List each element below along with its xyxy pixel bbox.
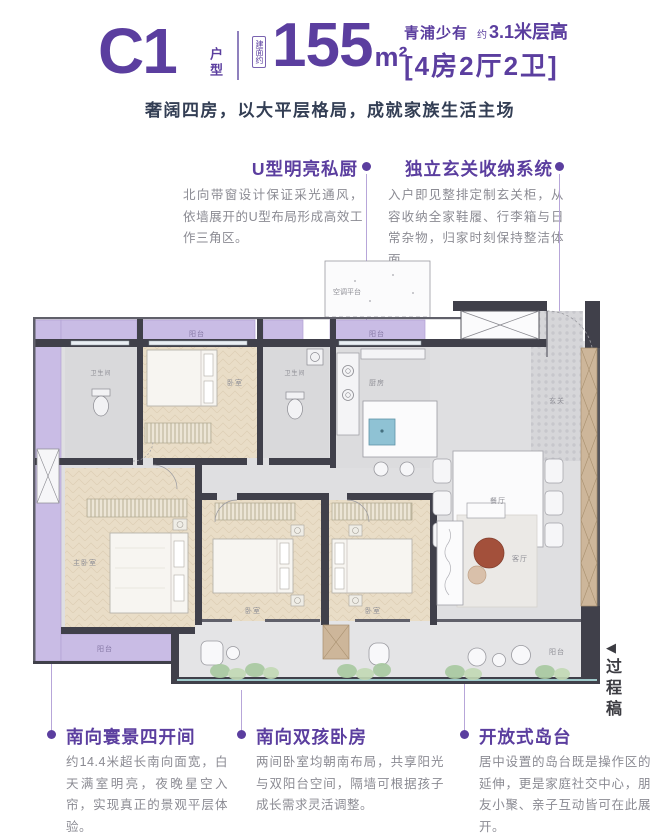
area-prefix-badge: 建面约 [252, 36, 266, 68]
ac-platform-label: 空调平台 [333, 287, 361, 296]
ac-platform: 空调平台 [325, 261, 430, 318]
round-side-table [468, 566, 486, 584]
console-table [467, 503, 505, 518]
master-bedroom-label: 主卧室 [73, 558, 97, 567]
header-right: 青浦少有 约3.1米层高 [4房2厅2卫] [404, 18, 568, 83]
elevator-shaft [461, 311, 539, 339]
kid1-wardrobe [215, 503, 295, 520]
height-approx: 约 [477, 30, 487, 41]
balcony-label: 阳台 [369, 329, 385, 338]
header-divider [237, 31, 239, 80]
north-bedroom-bed [147, 350, 217, 406]
bedroom-label: 卧室 [245, 606, 261, 615]
ceiling-height: 3.1米层高 [489, 22, 568, 42]
bedroom-label: 卧室 [365, 606, 381, 615]
subtitle: 奢阔四房，以大平层格局，成就家族生活主场 [0, 96, 660, 121]
foyer-cabinet [581, 348, 597, 606]
washer-icon [307, 349, 323, 365]
master-wardrobe [87, 499, 187, 517]
unit-type-label: 户型 [206, 47, 225, 79]
callout-kitchen-body: 北向带窗设计保证采光通风，依墙展开的U型布局形成高效工作三角区。 [183, 185, 363, 250]
dining-room-label: 餐厅 [490, 496, 506, 505]
area-value: 155 [272, 10, 372, 81]
callout-kitchen-title: U型明亮私厨 [180, 156, 358, 181]
callout-kids-rooms-body: 两间卧室均朝南布局，共享阳光与双阳台空间，隔墙可根据孩子成长需求灵活调整。 [256, 752, 444, 817]
left-window-box [37, 449, 59, 503]
island-stool [400, 462, 414, 476]
bedroom-label: 卧室 [227, 378, 243, 387]
toilet-1 [92, 389, 110, 416]
living-room-label: 客厅 [512, 554, 528, 563]
kitchen-label: 厨房 [369, 378, 385, 387]
foyer-label: 玄关 [549, 396, 565, 405]
unit-code: C1 [98, 14, 176, 88]
callout-dot [362, 162, 371, 171]
north-bedroom-wardrobe [145, 423, 211, 443]
island-stool [374, 462, 388, 476]
kid2-wardrobe [332, 503, 412, 520]
callout-island-title: 开放式岛台 [479, 724, 572, 749]
master-bed [110, 519, 188, 613]
bathroom-label: 卫生间 [90, 369, 111, 377]
balcony-label: 阳台 [97, 644, 113, 653]
callout-kids-rooms-title: 南向双孩卧房 [256, 724, 367, 749]
callout-south-bays-title: 南向寰景四开间 [66, 724, 196, 749]
callout-foyer-title: 独立玄关收纳系统 [375, 156, 553, 181]
callout-dot [555, 162, 564, 171]
rarity-tagline: 青浦少有 [404, 22, 468, 43]
flyer-page: C1 户型 建面约 155 m² 青浦少有 约3.1米层高 [4房2厅2卫] 奢… [0, 0, 660, 836]
callout-south-bays-body: 约14.4米超长南向面宽，白天满室明亮，夜晚星空入帘，实现真正的景观平层体验。 [66, 752, 228, 836]
area-figure: 155 m² [272, 10, 407, 81]
callout-dot [47, 730, 56, 739]
balcony-label: 阳台 [189, 329, 205, 338]
round-tea-table [474, 538, 504, 568]
floor-plan: 空调平台 [25, 253, 625, 705]
tv-console [437, 521, 463, 605]
balcony-label: 阳台 [549, 647, 565, 656]
toilet-2 [286, 392, 304, 419]
area-unit: m² [374, 42, 407, 73]
callout-island-body: 居中设置的岛台既是操作区的延伸，更是家庭社交中心，朋友小聚、亲子互动皆可在此展开… [479, 752, 651, 836]
bathroom-label: 卫生间 [284, 369, 305, 377]
callout-dot [237, 730, 246, 739]
layout-spec: [4房2厅2卫] [404, 46, 568, 83]
callout-dot [460, 730, 469, 739]
